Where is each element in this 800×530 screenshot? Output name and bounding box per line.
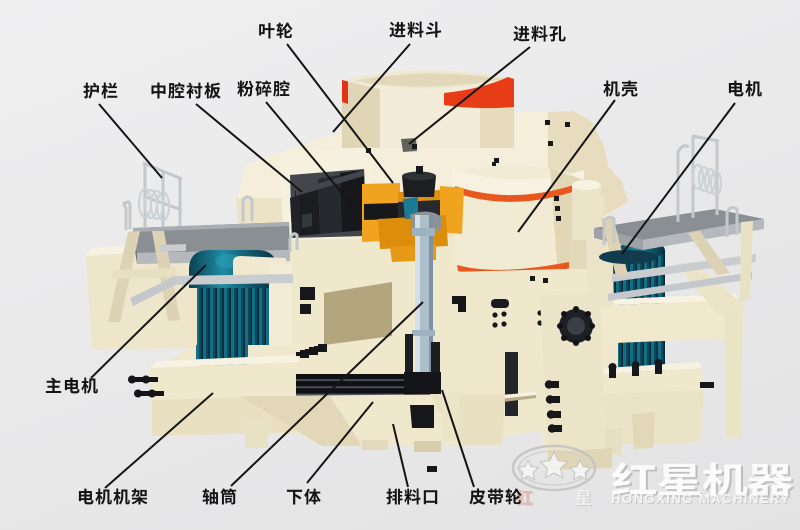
svg-text:HONGXING MACHINERY: HONGXING MACHINERY [611,491,789,506]
